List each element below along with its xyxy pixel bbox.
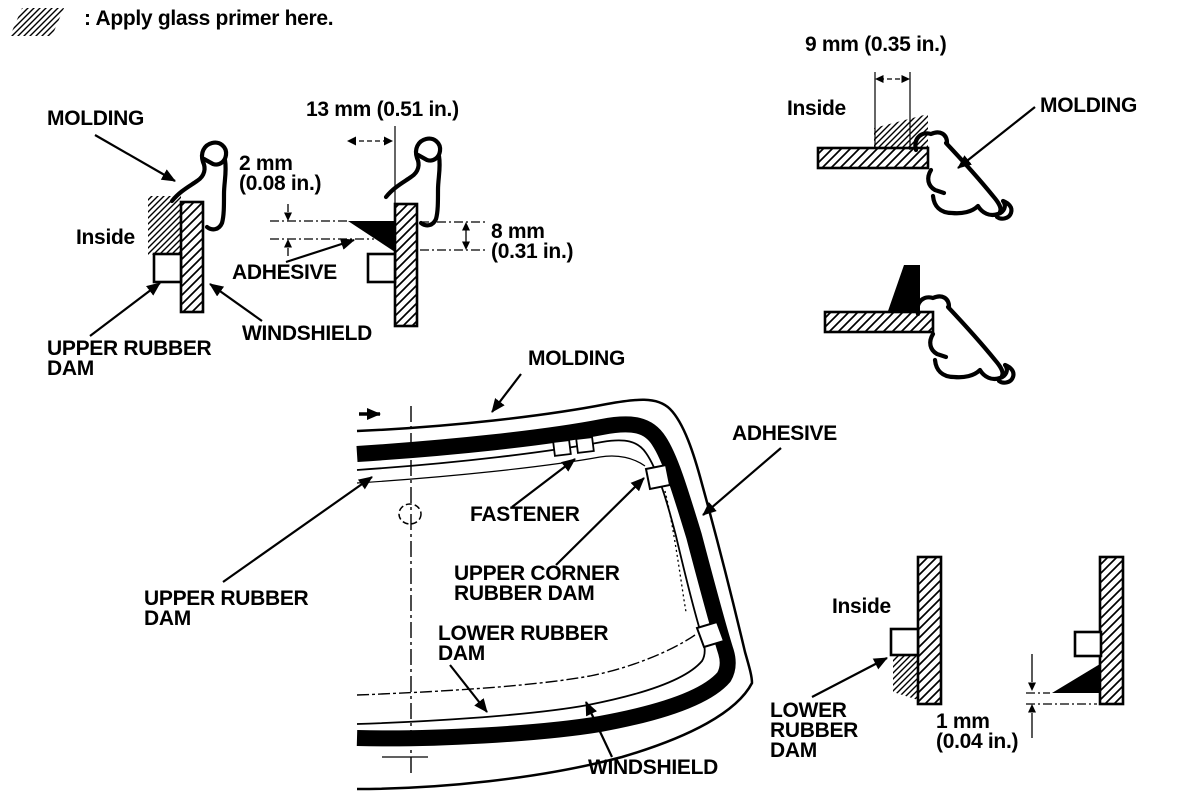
dim-arrowhead [384,137,393,146]
glass-primer-hatch-swatch [10,8,64,36]
dim-arrowhead [462,242,470,251]
adhesive-wedge [888,265,920,311]
adhesive-pointer [286,240,354,262]
windshield-pointer [210,284,262,321]
fastener-pointer [512,459,575,507]
windshield-glass-section [918,557,941,704]
windshield-installation-diagram: : Apply glass primer here. MOLDING Insid… [0,0,1184,800]
lower-rubber-dam-pointer [812,658,887,697]
inside-label-left: Inside [76,228,135,248]
windshield-glass-section [181,202,203,312]
fastener-tab [576,437,594,453]
upper-corner-rubber-dam-notch [646,465,670,489]
dim-2mm-label: 2 mm (0.08 in.) [239,154,321,194]
molding-label-left: MOLDING [47,109,144,129]
dim-arrowhead [284,213,292,222]
dim-1mm-ext [1026,693,1097,704]
adhesive-wedge [348,221,395,252]
lower-rubber-dam-label-overview: LOWER RUBBER DAM [438,624,608,664]
primer-area [893,656,918,700]
windshield-glass-section [818,148,928,168]
molding-label-topright: MOLDING [1040,96,1137,116]
molding-pointer [95,135,175,181]
upper-rubber-dam-label-overview: UPPER RUBBER DAM [144,589,308,629]
dim-arrowhead [284,239,292,248]
upper-rubber-dam-label-left: UPPER RUBBER DAM [47,339,211,379]
dim-1mm-label: 1 mm (0.04 in.) [936,712,1018,752]
windshield-glass-section [1100,557,1123,704]
upper-rubber-dam-section [154,254,181,282]
upper-rubber-dam-pointer [90,283,160,336]
primer-area [874,114,928,148]
inside-label-bottomright: Inside [832,597,891,617]
adhesive-label-left: ADHESIVE [232,263,337,283]
lower-rubber-dam-label-right: LOWER RUBBER DAM [770,701,858,761]
dim-arrowhead [462,222,470,231]
dim-arrowhead [1028,704,1036,713]
diagram-lineart [0,0,1184,800]
primer-area [148,196,181,255]
upper-edge-detail [818,72,1035,383]
adhesive-pointer [703,448,781,515]
upper-rubber-dam-line [357,456,645,483]
dim-arrowhead [1028,683,1036,692]
upper-rubber-dam-pointer [223,477,372,582]
windshield-label-left: WINDSHIELD [242,324,372,344]
reference-hole [399,504,421,524]
windshield-glass-section [395,204,417,326]
molding-label-overview: MOLDING [528,349,625,369]
adhesive-label-overview: ADHESIVE [732,424,837,444]
dim-arrowhead [902,75,911,83]
dim-13mm-label: 13 mm (0.51 in.) [306,100,459,120]
inside-label-topright: Inside [787,99,846,119]
rubber-dam-section [368,254,395,282]
dim-9mm-label: 9 mm (0.35 in.) [805,35,946,55]
fastener-tab [553,440,571,456]
legend-label: : Apply glass primer here. [84,9,333,29]
dim-arrowhead [875,75,884,83]
adhesive-wedge [1052,664,1100,693]
dim-8mm-label: 8 mm (0.31 in.) [491,222,573,262]
lower-rubber-dam-pointer [450,665,487,712]
lower-rubber-dam-section [891,629,918,655]
dim-arrowhead [347,137,356,146]
upper-corner-rubber-dam-label: UPPER CORNER RUBBER DAM [454,564,620,604]
molding-pointer [492,374,521,412]
molding-profile [915,132,1011,218]
molding-pointer [958,107,1035,168]
windshield-label-overview: WINDSHIELD [588,758,718,778]
fastener-label: FASTENER [470,505,580,525]
rubber-dam-section [1075,632,1101,656]
